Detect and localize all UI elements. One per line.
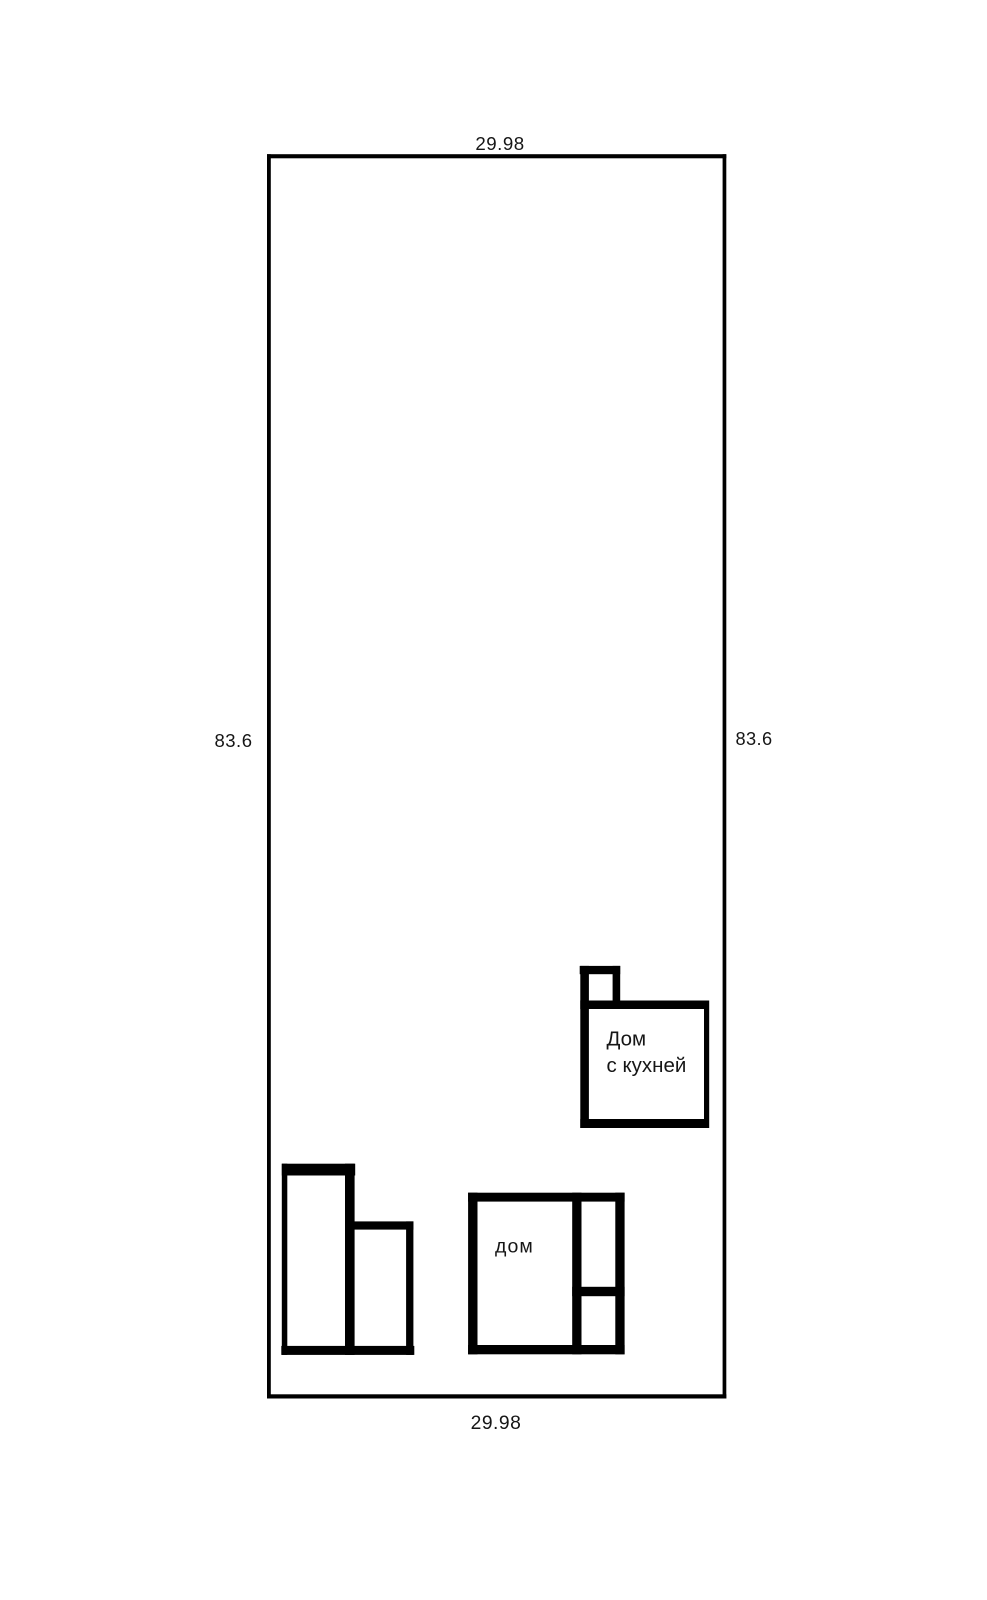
svg-text:дом: дом (495, 1236, 534, 1258)
svg-text:83.6: 83.6 (214, 730, 252, 751)
svg-text:83.6: 83.6 (736, 729, 773, 749)
svg-text:29.98: 29.98 (475, 133, 524, 154)
svg-text:Дом: Дом (607, 1027, 647, 1050)
svg-text:29.98: 29.98 (471, 1413, 522, 1434)
svg-text:с кухней: с кухней (607, 1054, 687, 1077)
